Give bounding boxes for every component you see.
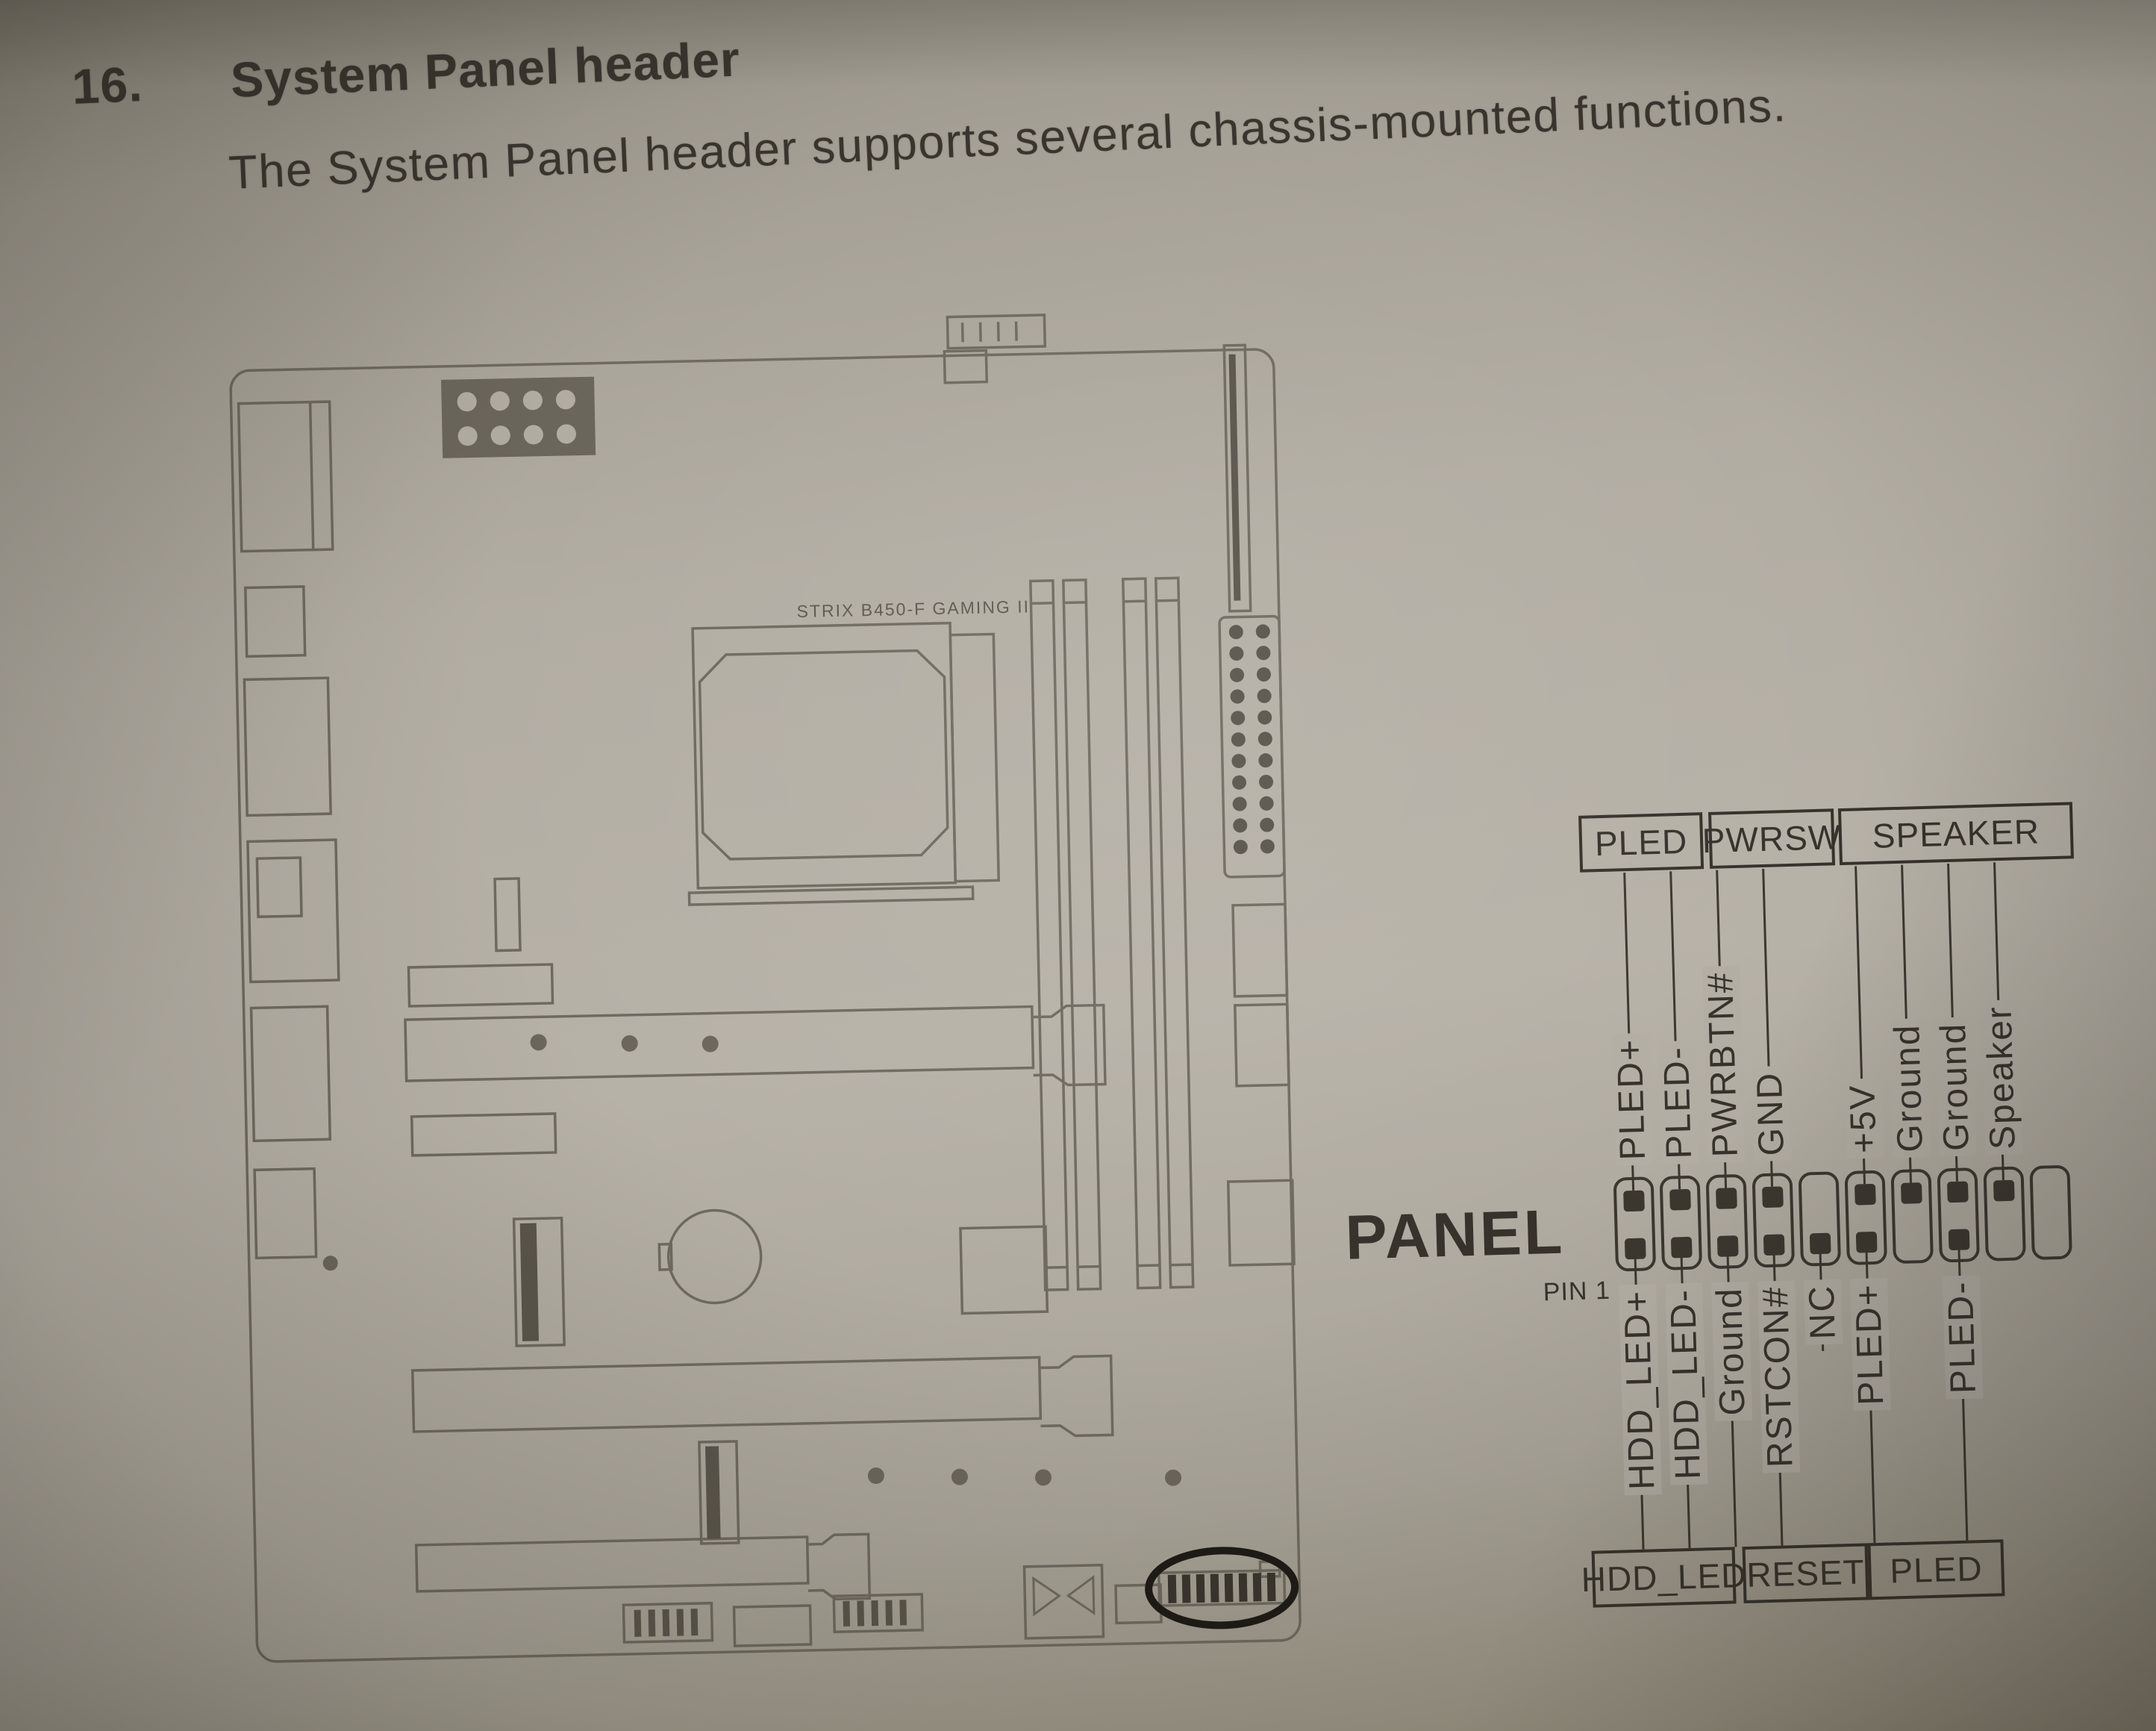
pin xyxy=(1763,1234,1785,1256)
page-title: System Panel header xyxy=(230,30,742,108)
dimm-slots xyxy=(1031,578,1193,1290)
pin xyxy=(1810,1233,1831,1255)
pin xyxy=(1993,1180,2015,1202)
bottom-pin-label: NC xyxy=(1804,1279,1843,1345)
top-group-pled-box: PLED xyxy=(1578,812,1704,873)
manual-page-photo: 16. System Panel header The System Panel… xyxy=(0,0,2156,1731)
atx-power-connector xyxy=(1219,616,1284,877)
cpu-socket xyxy=(684,622,999,905)
right-edge-connector-top xyxy=(1224,345,1250,611)
bottom-pin-label: PLED- xyxy=(1942,1275,1983,1400)
top-pin-label: PLED+ xyxy=(1611,1032,1652,1166)
section-number: 16. xyxy=(71,55,144,115)
pin xyxy=(1762,1186,1784,1208)
board-model-label: STRIX B450-F GAMING II xyxy=(796,596,1030,621)
top-group-pwrsw-box: PWRSW xyxy=(1708,808,1835,869)
right-edge-headers xyxy=(1222,904,1294,1265)
rear-io-ports xyxy=(239,402,348,1258)
pin xyxy=(1716,1188,1737,1209)
motherboard-diagram: STRIX B450-F GAMING II xyxy=(225,293,1305,1670)
chipset xyxy=(960,1226,1047,1313)
m2-slots xyxy=(514,1214,739,1547)
pin xyxy=(1671,1237,1693,1259)
pin xyxy=(1625,1238,1646,1260)
pin-column-10 xyxy=(2029,1165,2072,1260)
pin xyxy=(1949,1229,1970,1250)
bottom-group-reset-box: RESET xyxy=(1742,1543,1869,1603)
bottom-pin-label: HDD_LED+ xyxy=(1619,1284,1662,1495)
pin xyxy=(1856,1232,1878,1253)
system-panel-header-location xyxy=(1148,1549,1296,1626)
bottom-group-hddled-box: HDD_LED xyxy=(1592,1547,1737,1607)
top-pin-label: Speaker xyxy=(1981,1000,2022,1155)
pin xyxy=(1623,1191,1645,1212)
board-outline xyxy=(231,349,1301,1662)
top-group-speaker-box: SPEAKER xyxy=(1838,802,2074,865)
bottom-pin-label: RSTCON# xyxy=(1757,1280,1801,1473)
pin xyxy=(1669,1189,1691,1211)
pin1-label: PIN 1 xyxy=(1505,1276,1610,1309)
bottom-pin-label: HDD_LED- xyxy=(1665,1282,1708,1485)
section-heading: 16. System Panel header xyxy=(71,30,741,114)
top-pin-label: Ground xyxy=(1889,1018,1931,1158)
front-header xyxy=(495,879,520,951)
top-pin-label: PWRBTN# xyxy=(1702,966,1746,1163)
pin xyxy=(1717,1235,1739,1257)
pcie-slots xyxy=(404,953,1116,1608)
pin xyxy=(1855,1184,1876,1206)
bottom-pin-label: PLED+ xyxy=(1850,1278,1891,1412)
eps-power-connector xyxy=(441,377,596,458)
top-pin-label: +5V xyxy=(1844,1079,1884,1159)
top-edge-headers xyxy=(943,315,1046,383)
pin xyxy=(1947,1181,1969,1203)
connector-name-label: PANEL xyxy=(1344,1196,1565,1274)
panel-pinout-diagram: PLED PWRSW SPEAKER PLED+ PLED- PWRBTN# G… xyxy=(1324,781,2101,1645)
bottom-group-pled-box: PLED xyxy=(1867,1539,2005,1600)
top-pin-label: GND xyxy=(1752,1066,1792,1161)
bottom-pin-label: Ground xyxy=(1711,1282,1753,1421)
cmos-battery xyxy=(658,1209,762,1304)
top-pin-label: Ground xyxy=(1935,1017,1977,1156)
pin xyxy=(1901,1182,1922,1204)
top-pin-label: PLED- xyxy=(1658,1040,1699,1164)
